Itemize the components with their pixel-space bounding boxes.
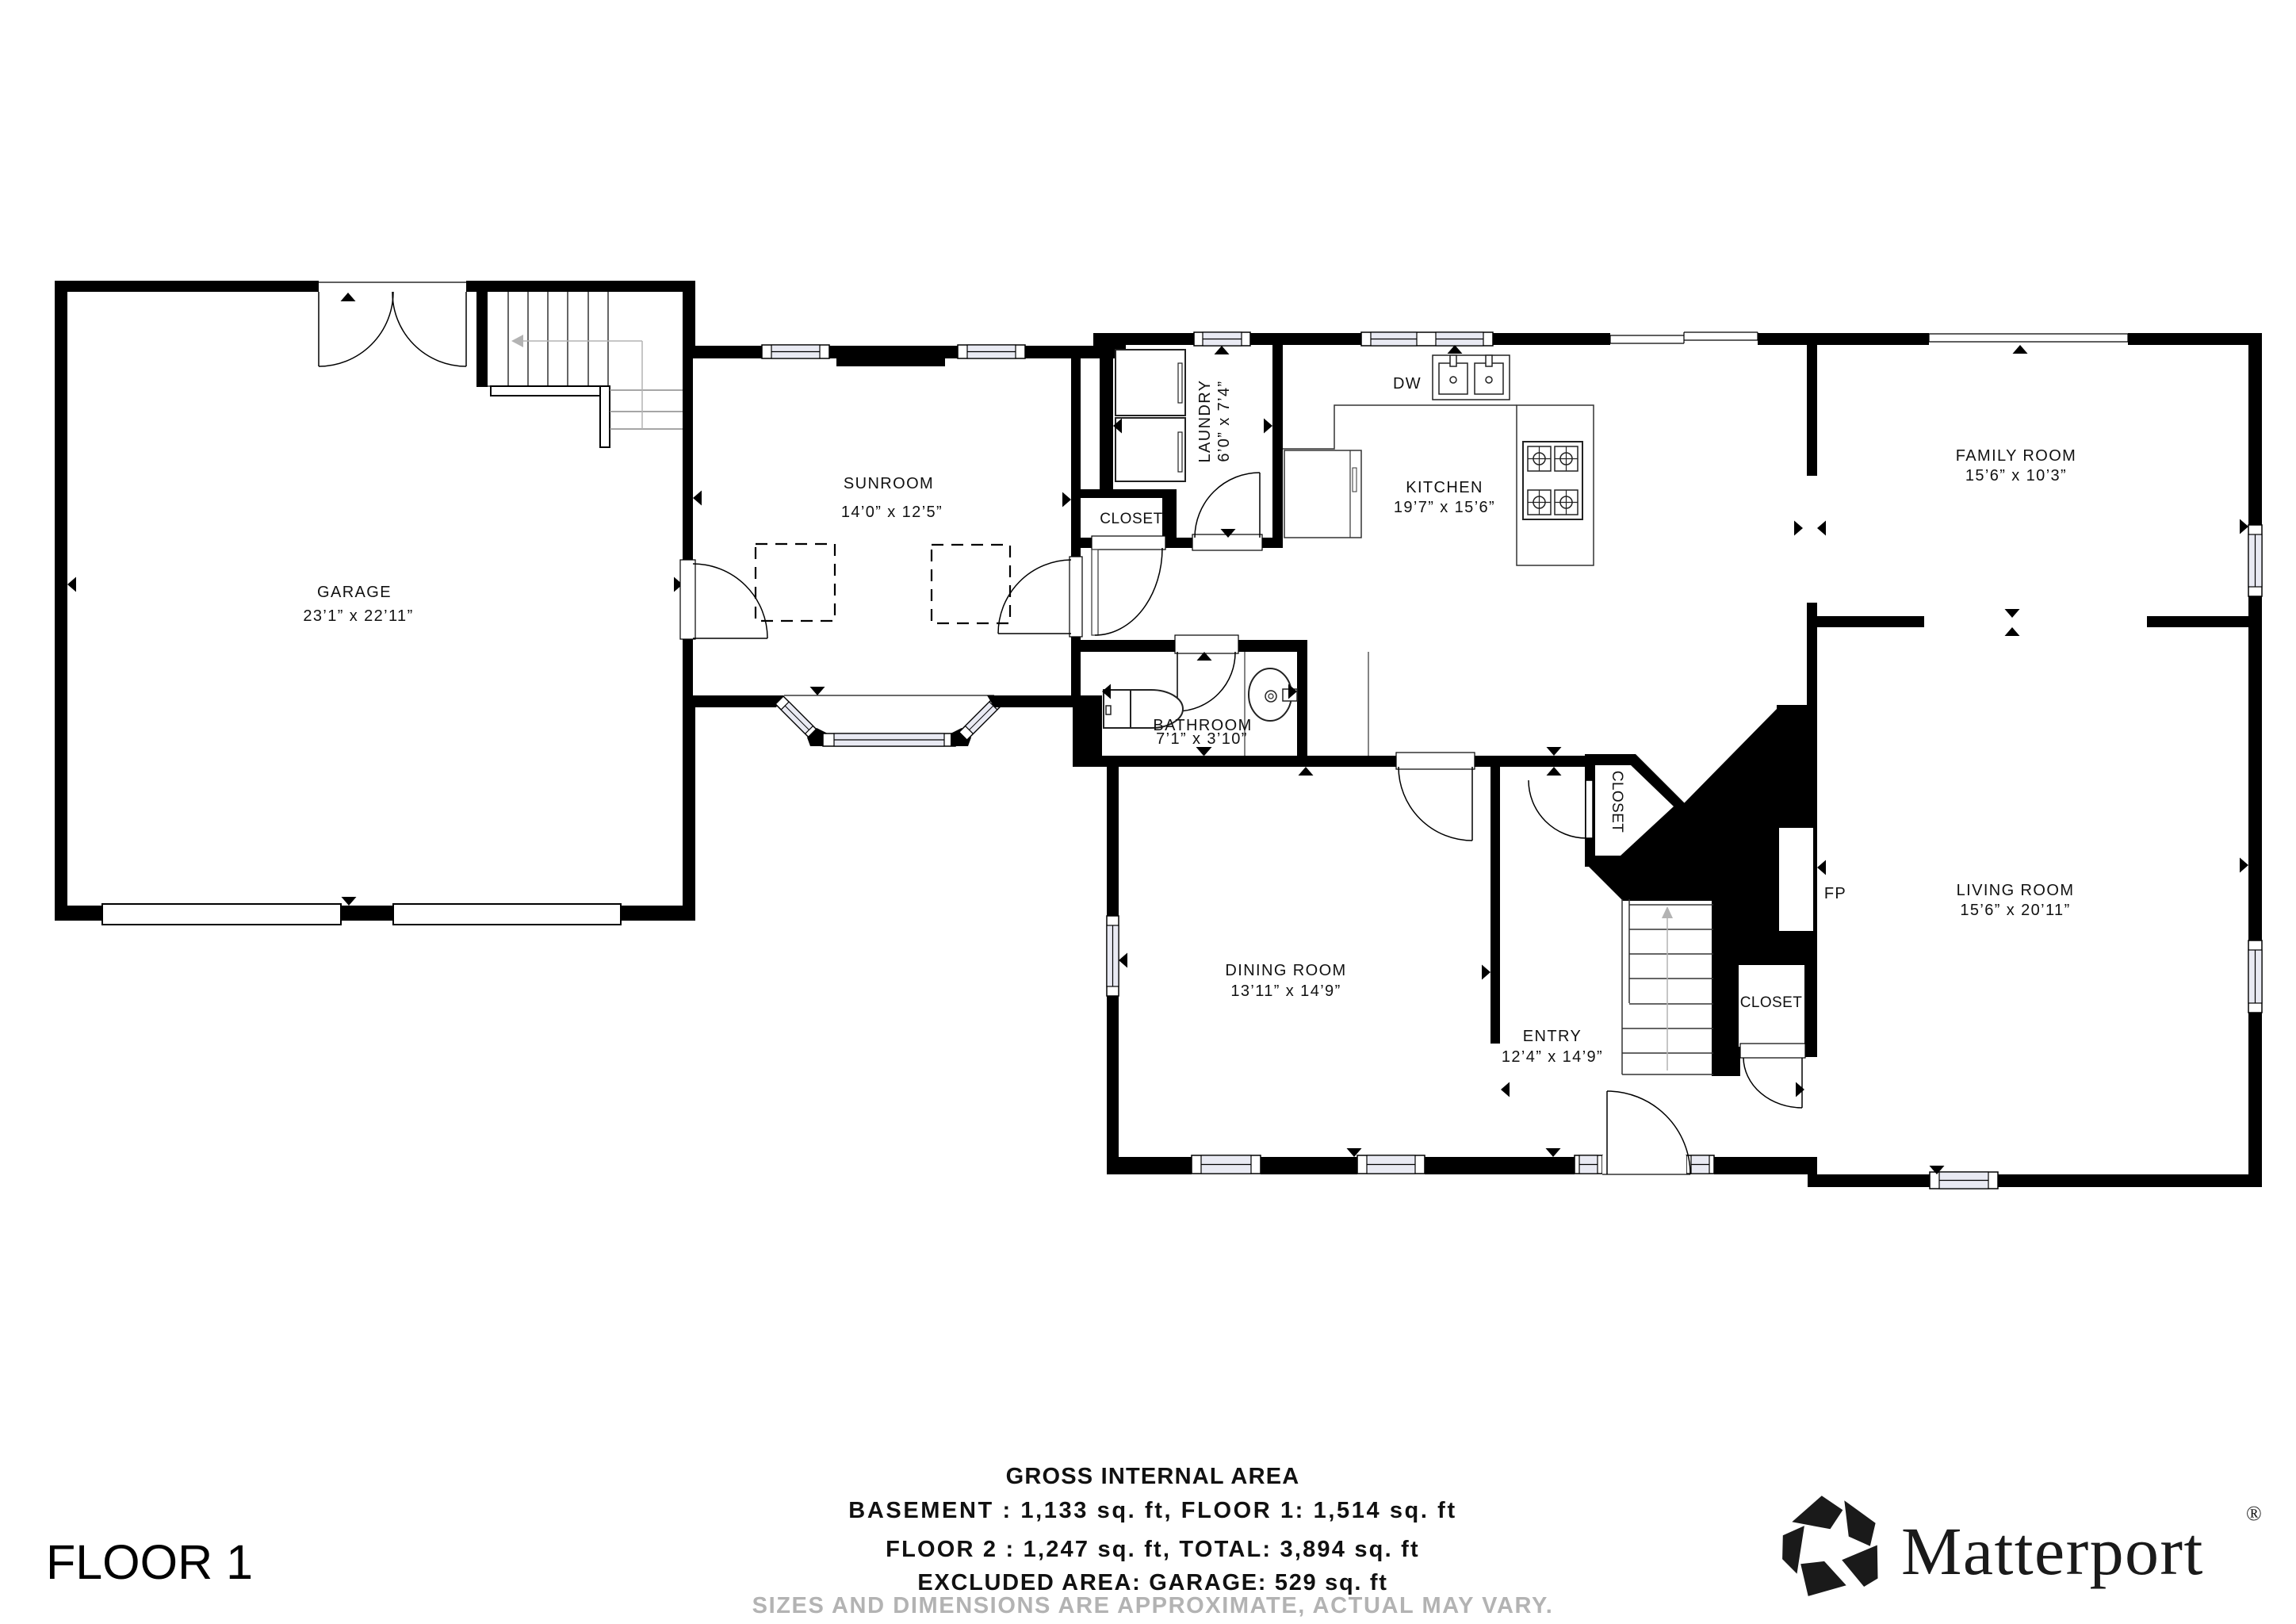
svg-text:CLOSET: CLOSET xyxy=(1609,771,1625,833)
svg-text:12’4” x 14’9”: 12’4” x 14’9” xyxy=(1502,1048,1603,1066)
svg-text:FP: FP xyxy=(1824,885,1846,902)
svg-text:19’7” x 15’6”: 19’7” x 15’6” xyxy=(1394,499,1495,516)
svg-text:13’11” x 14’9”: 13’11” x 14’9” xyxy=(1230,982,1341,1000)
svg-text:GARAGE: GARAGE xyxy=(317,584,392,601)
svg-text:DW: DW xyxy=(1393,375,1422,393)
svg-text:GROSS INTERNAL AREA: GROSS INTERNAL AREA xyxy=(1006,1464,1300,1489)
svg-text:CLOSET: CLOSET xyxy=(1100,511,1163,527)
svg-text:SIZES AND DIMENSIONS ARE APPRO: SIZES AND DIMENSIONS ARE APPROXIMATE, AC… xyxy=(752,1593,1554,1618)
svg-text:FLOOR 1: FLOOR 1 xyxy=(46,1535,253,1589)
svg-text:CLOSET: CLOSET xyxy=(1740,994,1802,1011)
svg-text:23’1” x 22’11”: 23’1” x 22’11” xyxy=(303,607,413,625)
svg-text:LIVING ROOM: LIVING ROOM xyxy=(1957,882,2075,899)
svg-text:EXCLUDED AREA: GARAGE: 529 sq.: EXCLUDED AREA: GARAGE: 529 sq. ft xyxy=(917,1570,1387,1595)
svg-text:LAUNDRY: LAUNDRY xyxy=(1196,379,1214,462)
svg-text:Matterport: Matterport xyxy=(1901,1513,2204,1589)
svg-text:6’0” x 7’4”: 6’0” x 7’4” xyxy=(1215,380,1233,462)
svg-text:14’0” x 12’5”: 14’0” x 12’5” xyxy=(841,504,943,521)
svg-text:BASEMENT : 1,133 sq. ft, FLOOR: BASEMENT : 1,133 sq. ft, FLOOR 1: 1,514 … xyxy=(848,1498,1456,1523)
svg-text:DINING ROOM: DINING ROOM xyxy=(1225,962,1346,979)
svg-text:15’6” x 10’3”: 15’6” x 10’3” xyxy=(1965,467,2067,485)
svg-text:ENTRY: ENTRY xyxy=(1523,1028,1582,1045)
svg-text:FLOOR 2 : 1,247 sq. ft, TOTAL:: FLOOR 2 : 1,247 sq. ft, TOTAL: 3,894 sq.… xyxy=(886,1537,1420,1562)
svg-text:FAMILY ROOM: FAMILY ROOM xyxy=(1956,447,2076,465)
svg-text:KITCHEN: KITCHEN xyxy=(1406,479,1483,496)
svg-text:7’1” x 3’10”: 7’1” x 3’10” xyxy=(1156,730,1248,748)
svg-text:®: ® xyxy=(2246,1502,2263,1525)
svg-text:SUNROOM: SUNROOM xyxy=(844,475,934,492)
svg-text:15’6” x 20’11”: 15’6” x 20’11” xyxy=(1960,902,2070,919)
